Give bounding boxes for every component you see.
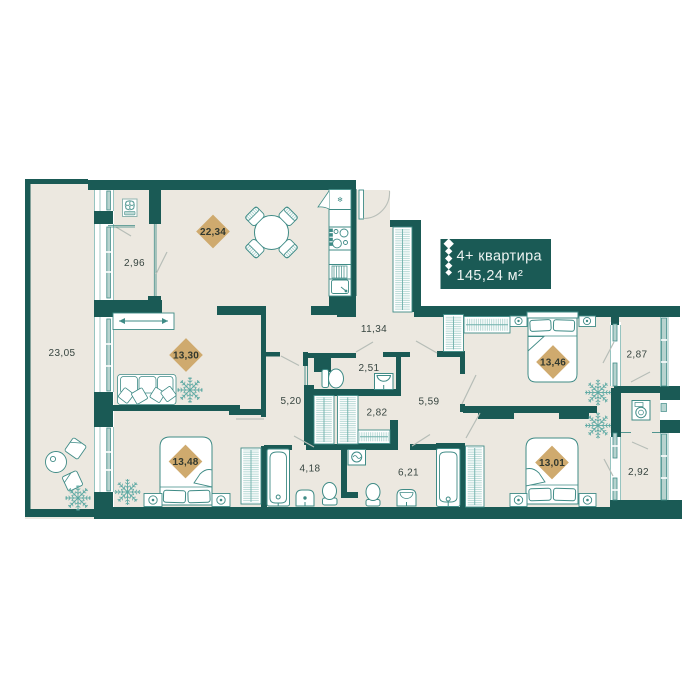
svg-text:13,01: 13,01 (539, 458, 565, 469)
svg-text:13,48: 13,48 (172, 457, 198, 468)
svg-text:11,34: 11,34 (361, 324, 387, 335)
svg-text:4+ квартира: 4+ квартира (457, 249, 543, 265)
svg-text:6,21: 6,21 (398, 468, 419, 479)
svg-text:23,05: 23,05 (48, 348, 75, 359)
svg-text:4,18: 4,18 (299, 464, 320, 475)
svg-text:2,82: 2,82 (366, 408, 387, 419)
svg-text:2,92: 2,92 (628, 467, 649, 478)
svg-text:5,20: 5,20 (280, 396, 301, 407)
svg-text:13,30: 13,30 (173, 351, 199, 362)
svg-text:2,51: 2,51 (358, 363, 379, 374)
svg-text:145,24 м²: 145,24 м² (457, 268, 524, 284)
svg-text:2,96: 2,96 (124, 258, 145, 269)
svg-text:2,87: 2,87 (626, 350, 647, 361)
svg-text:13,46: 13,46 (540, 358, 566, 369)
svg-text:5,59: 5,59 (418, 397, 439, 408)
svg-text:❄: ❄ (337, 196, 343, 204)
svg-text:22,34: 22,34 (200, 227, 226, 238)
